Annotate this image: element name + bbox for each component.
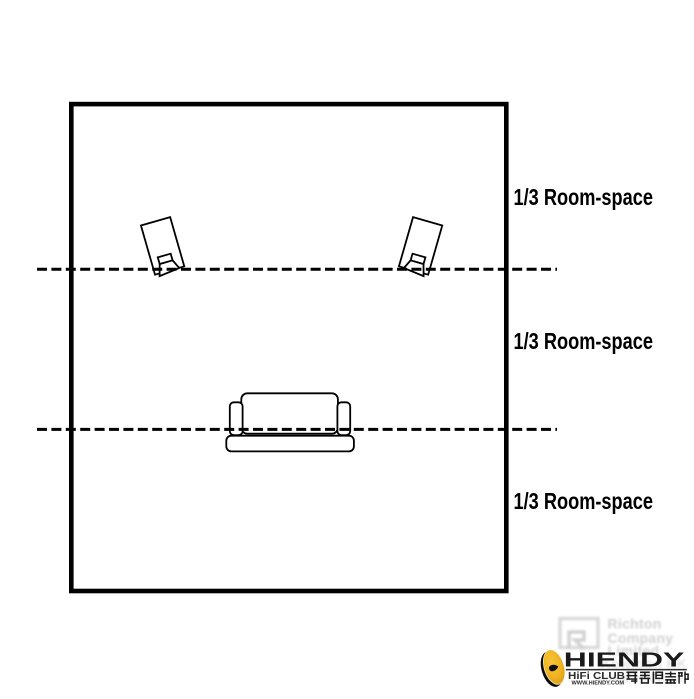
svg-text:WWW.HIENDY.COM: WWW.HIENDY.COM [572, 680, 625, 686]
svg-text:HIENDY: HIENDY [564, 650, 686, 672]
svg-text:1/3 Room-space: 1/3 Room-space [514, 488, 654, 514]
svg-text:Richton: Richton [608, 616, 662, 632]
svg-text:1/3 Room-space: 1/3 Room-space [514, 184, 654, 210]
svg-text:1/3 Room-space: 1/3 Room-space [514, 328, 654, 354]
